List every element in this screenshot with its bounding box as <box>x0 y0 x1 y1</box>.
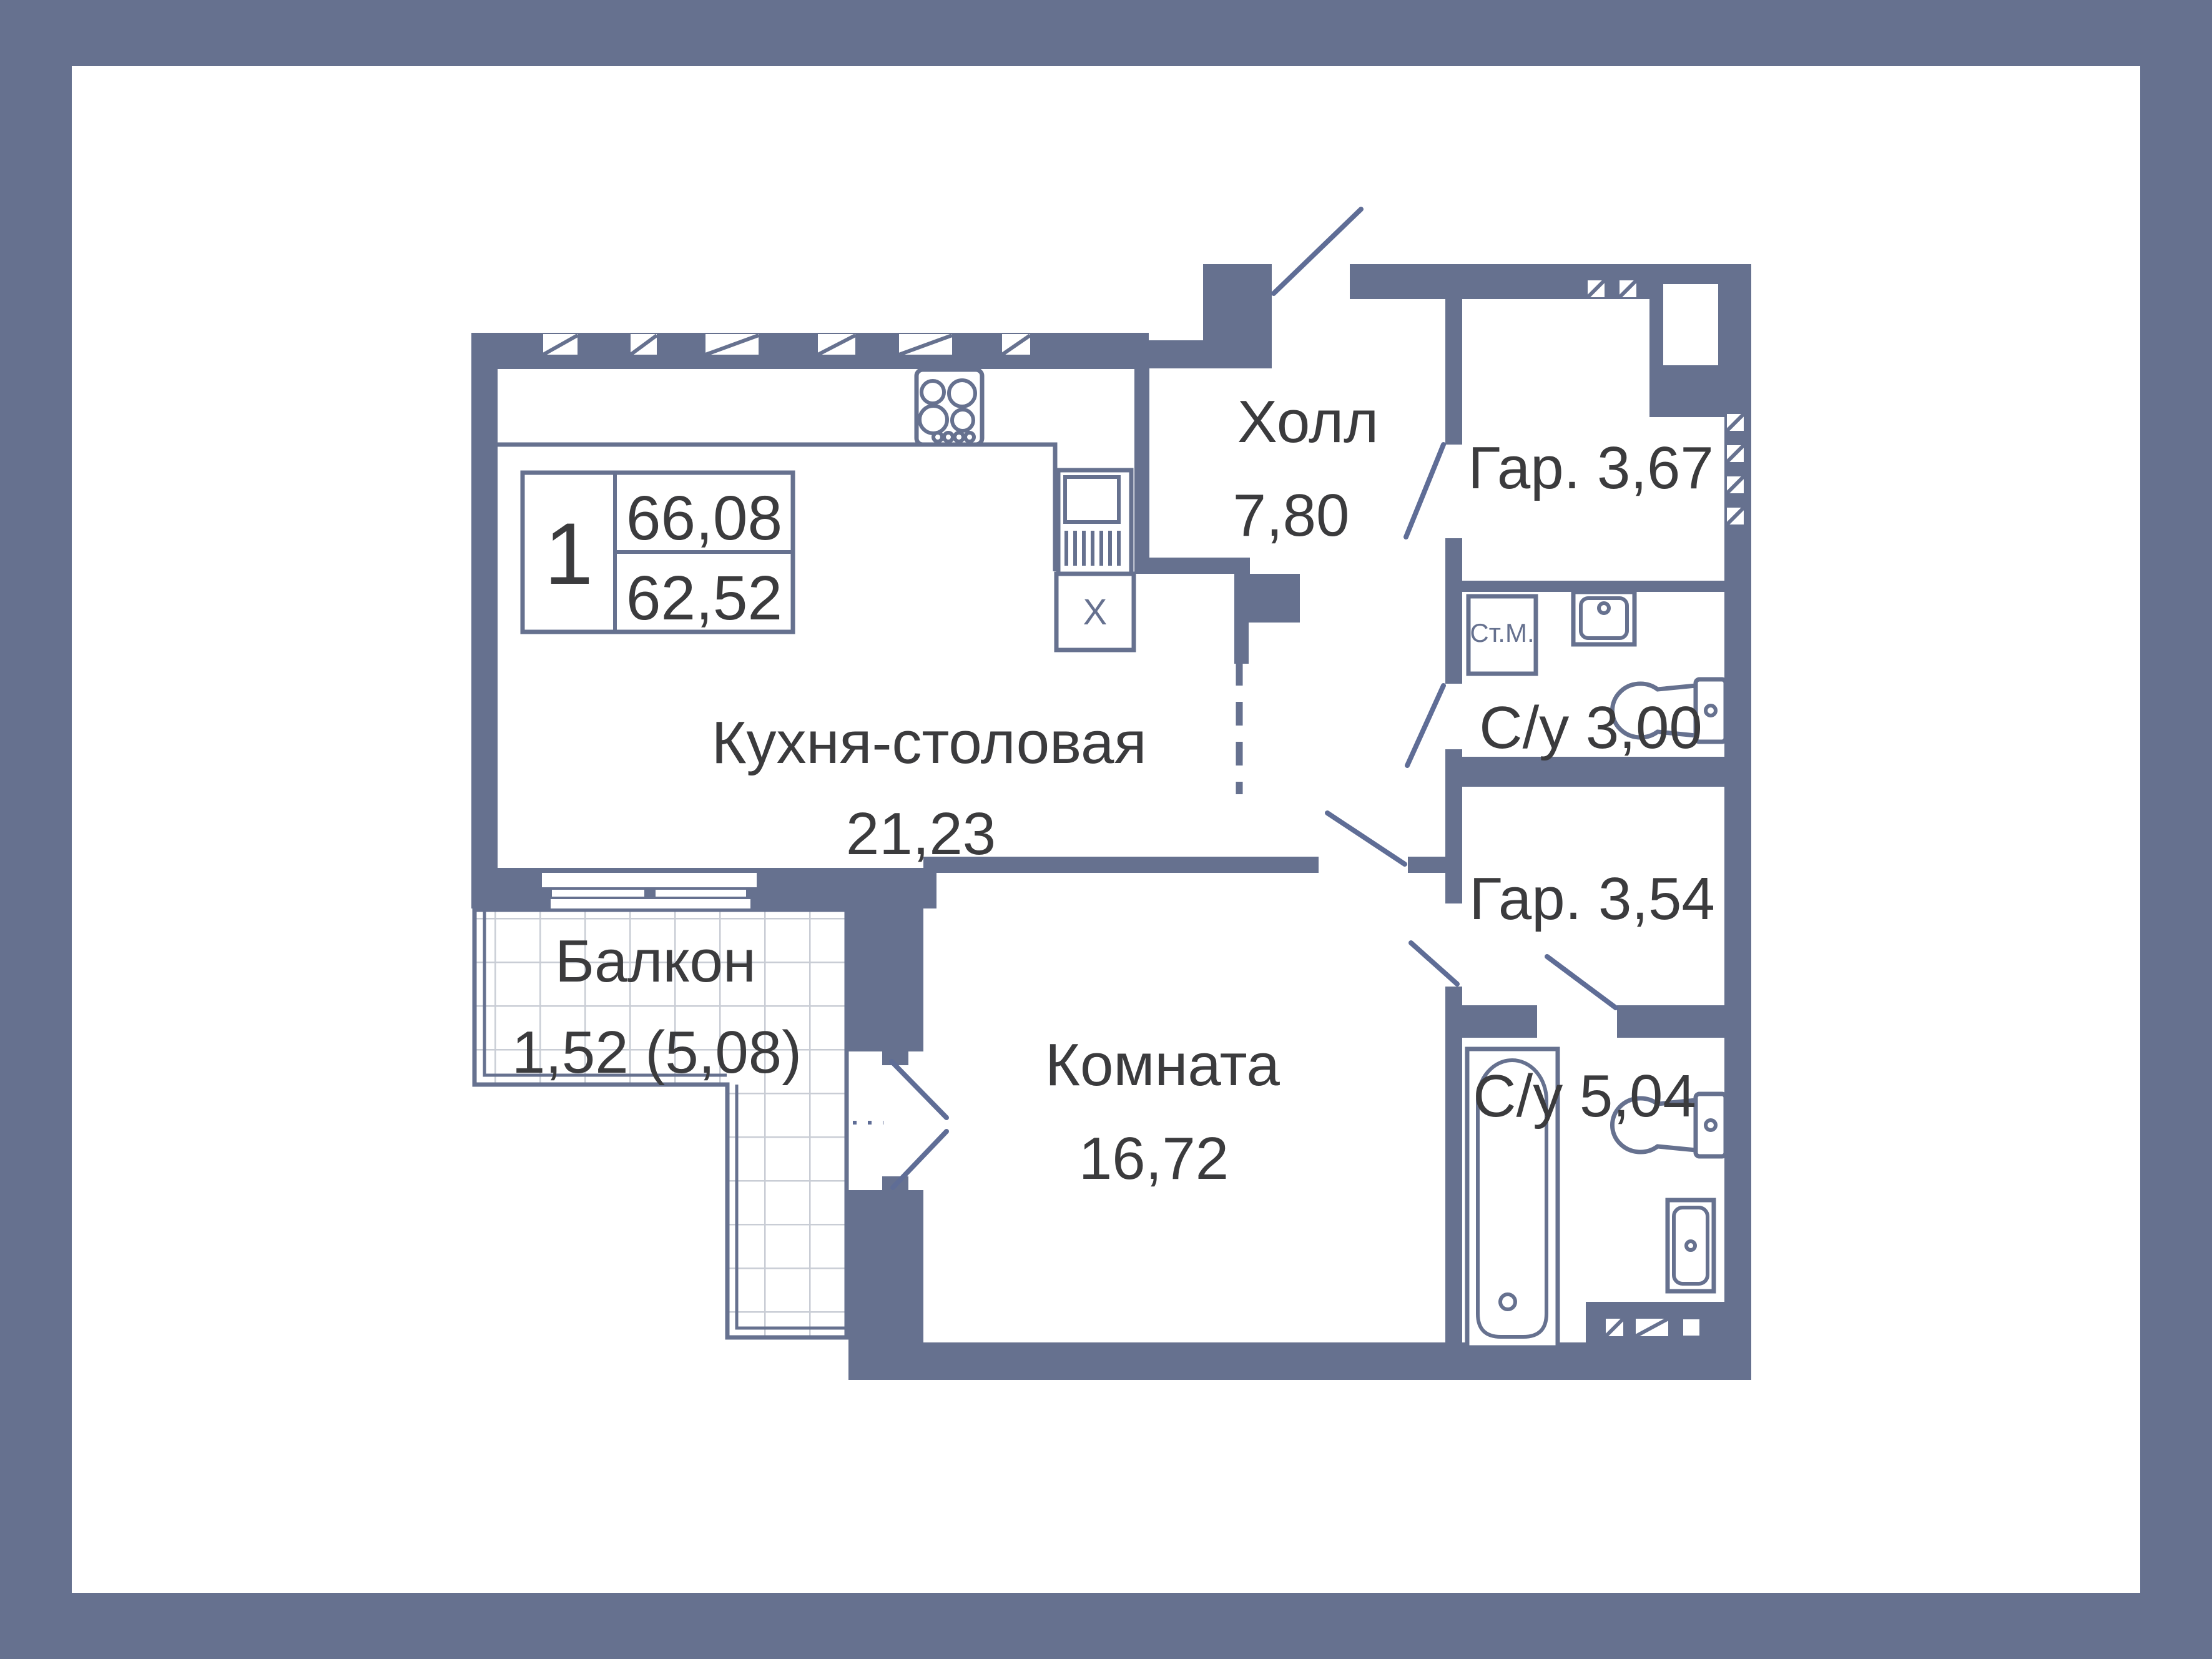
wall-su3-bottom <box>1445 757 1726 787</box>
wall-corridor-stub <box>1234 623 1249 664</box>
legend-total-area: 66,08 <box>626 483 782 553</box>
hall-area: 7,80 <box>1233 482 1350 549</box>
frame-left <box>0 0 72 1659</box>
washing-machine-icon: Ст.М. <box>1468 596 1536 674</box>
wall-gar354-bottom-r <box>1617 1005 1726 1038</box>
shaft-opening <box>1663 284 1718 365</box>
kitchen-label: Кухня-столовая <box>712 709 1147 776</box>
wall-su5-left <box>1445 1039 1462 1345</box>
hall-label: Холл <box>1237 388 1379 455</box>
wall-room-top-e <box>1408 857 1445 873</box>
sink-icon-top <box>1573 592 1634 644</box>
window-sash-right <box>656 890 746 897</box>
wall-kitchen-left <box>471 333 498 908</box>
legend-rooms-count: 1 <box>544 505 593 603</box>
appliance-x-label: X <box>1083 592 1108 633</box>
living-room-area: 16,72 <box>1079 1125 1229 1192</box>
fridge-icon <box>1058 470 1131 574</box>
kitchen-area: 21,23 <box>846 800 996 867</box>
floor-plan: X Ст.М. <box>0 0 2212 1659</box>
page-background <box>0 0 2212 1659</box>
wall-top-mid <box>1149 340 1272 368</box>
frame-bottom <box>0 1593 2212 1659</box>
wall-hall-left <box>1134 367 1149 559</box>
wall-gar354-left <box>1445 787 1462 903</box>
wardrobe-top-label: Гар. 3,67 <box>1468 435 1714 501</box>
stove-icon <box>917 370 982 445</box>
wall-bottom <box>848 1342 1751 1380</box>
living-room-label: Комната <box>1045 1031 1281 1098</box>
wall-balcony-room-low <box>848 1190 923 1345</box>
appliance-x-box: X <box>1056 574 1134 650</box>
legend-living-area: 62,52 <box>626 563 782 633</box>
bathroom-top-label: С/у 3,00 <box>1479 694 1703 761</box>
balcony-label: Балкон <box>555 928 756 995</box>
wall-divider-mid <box>1445 538 1462 593</box>
balcony-area: 1,52 (5,08) <box>512 1019 802 1086</box>
window-sash-top <box>542 873 757 887</box>
wall-hall-bottom <box>1134 558 1250 574</box>
frame-right <box>2140 0 2212 1659</box>
window-sill <box>551 899 750 908</box>
wall-entrance-left <box>1203 264 1272 342</box>
wall-gar354-left-low <box>1445 987 1462 1039</box>
washing-machine-label: Ст.М. <box>1470 618 1534 647</box>
frame-top <box>0 0 2212 66</box>
wall-su3-left-top <box>1445 593 1462 684</box>
sink-icon-bottom <box>1668 1200 1714 1291</box>
wall-gar354-bottom-l <box>1462 1005 1537 1038</box>
wardrobe-low-label: Гар. 3,54 <box>1469 865 1715 932</box>
wall-corridor-block <box>1234 574 1300 623</box>
wall-divider-upper <box>1445 298 1462 445</box>
bathroom-low-label: С/у 5,04 <box>1473 1063 1696 1130</box>
legend-box: 1 66,08 62,52 <box>523 473 793 633</box>
wall-balcony-room-up <box>848 899 923 1051</box>
window-sash-left <box>552 890 644 897</box>
